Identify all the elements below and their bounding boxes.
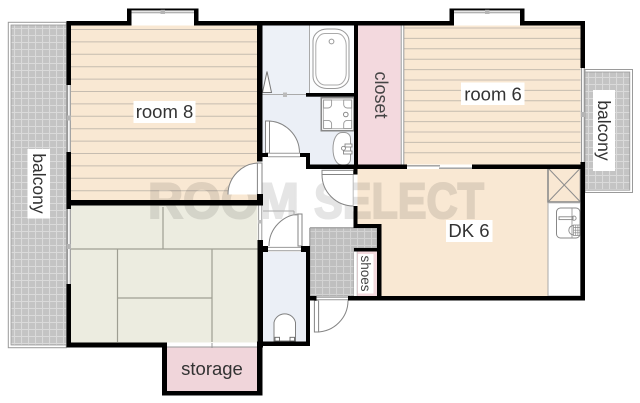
svg-text:shoes: shoes [358,255,373,291]
svg-text:balcony: balcony [29,153,49,214]
svg-text:DK 6: DK 6 [448,220,489,241]
svg-text:closet: closet [371,71,391,118]
svg-text:room 6: room 6 [464,84,522,105]
svg-text:storage: storage [181,358,243,379]
svg-text:balcony: balcony [594,100,614,161]
svg-text:room 8: room 8 [136,101,194,122]
